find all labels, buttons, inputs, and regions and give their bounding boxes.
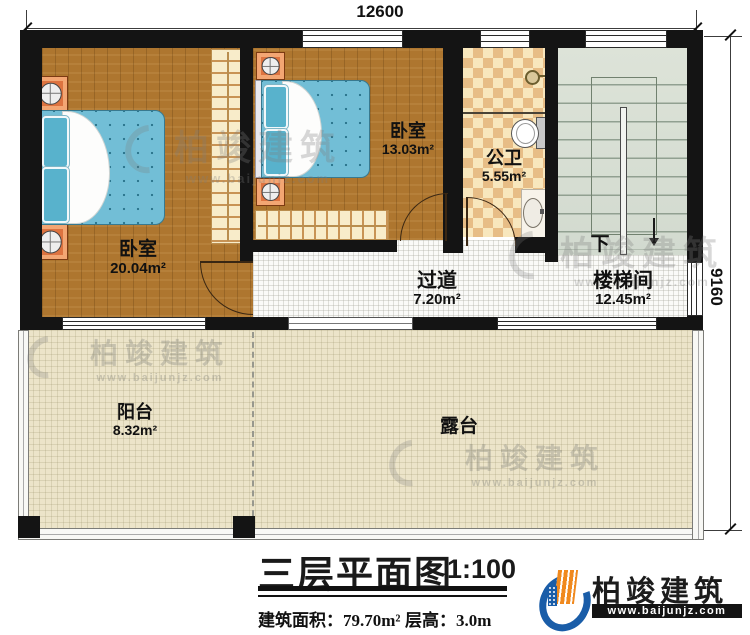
wall-corridor-top xyxy=(253,240,397,252)
wall-top-b xyxy=(403,30,480,48)
title-underline-thick xyxy=(258,586,507,591)
wall-top-c xyxy=(530,30,585,48)
build-area-value: 79.70m² xyxy=(343,611,401,630)
window-bathroom-top xyxy=(480,30,530,48)
bathroom-door-leaf xyxy=(466,197,468,246)
right-dimension-ext-bottom xyxy=(704,530,742,531)
brand-url: www.baijunjz.com xyxy=(592,604,742,618)
brand-logo: 柏竣建筑 www.baijunjz.com xyxy=(540,566,740,630)
title-underline-thin xyxy=(258,595,507,597)
corridor-label: 过道 7.20m² xyxy=(377,270,497,309)
balcony-label: 阳台 8.32m² xyxy=(75,403,195,438)
bedroom2-wardrobe xyxy=(255,210,389,240)
brand-building-icon xyxy=(554,570,578,604)
window-stairwell-top xyxy=(585,30,667,48)
shower-head-icon xyxy=(525,70,540,85)
bedroom2-nightstand-top xyxy=(256,52,285,80)
bathroom-partition-line xyxy=(463,112,545,114)
room-name: 卧室 xyxy=(348,122,468,142)
floor-height-info: 层高：3.0m xyxy=(405,606,491,631)
room-name: 楼梯间 xyxy=(563,270,683,292)
build-area-label: 建筑面积： xyxy=(258,611,343,630)
slider-corridor-terrace xyxy=(288,317,413,330)
floor-plan-page: 12600 9160 xyxy=(0,0,750,635)
wall-left xyxy=(20,30,42,330)
wall-top-a xyxy=(20,30,302,48)
build-area-info: 建筑面积：79.70m² xyxy=(258,606,401,631)
window-bedroom2-top xyxy=(302,30,403,48)
room-area: 5.55m² xyxy=(444,169,564,184)
stairwell-label: 楼梯间 12.45m² xyxy=(563,270,683,309)
wall-bottom-a xyxy=(20,317,62,330)
watermark-url: www.baijunjz.com xyxy=(440,477,630,489)
room-name: 公卫 xyxy=(444,149,564,169)
terrace-label: 露台 xyxy=(399,417,519,438)
watermark-url: www.baijunjz.com xyxy=(128,171,388,186)
lamp-icon xyxy=(39,82,61,104)
bedroom2-door-leaf xyxy=(445,193,447,241)
watermark-url: www.baijunjz.com xyxy=(60,372,260,384)
room-area: 7.20m² xyxy=(377,292,497,309)
room-name: 露台 xyxy=(399,417,519,438)
wall-bottom-b xyxy=(206,317,288,330)
room-area: 20.04m² xyxy=(78,261,198,278)
down-text: 下 xyxy=(585,235,615,256)
room-name: 卧室 xyxy=(78,240,198,261)
watermark-text: 柏竣建筑 xyxy=(60,332,260,372)
bedroom1-pillow-top xyxy=(42,116,69,168)
lamp-icon xyxy=(39,230,61,253)
room-area: 8.32m² xyxy=(75,423,195,438)
terrace-railing-bottom xyxy=(18,528,704,540)
watermark-terrace: 柏竣建筑 www.baijunjz.com xyxy=(440,437,630,489)
watermark-balcony: 柏竣建筑 www.baijunjz.com xyxy=(60,332,260,384)
bedroom1-door-leaf xyxy=(200,261,253,263)
bathroom-label: 公卫 5.55m² xyxy=(444,149,564,184)
top-dimension-label: 12600 xyxy=(280,2,480,22)
lamp-icon xyxy=(261,57,280,75)
railing-post-left xyxy=(18,516,40,538)
plan-scale: 1:100 xyxy=(447,554,516,585)
terrace-railing-right xyxy=(692,330,704,540)
room-name: 阳台 xyxy=(75,403,195,423)
wall-bottom-c xyxy=(413,317,497,330)
window-stairwell-terrace xyxy=(497,317,657,330)
stairs-down-label: 下 xyxy=(585,235,615,256)
wall-bottom-d xyxy=(657,317,703,330)
top-dimension-line xyxy=(26,28,697,29)
room-area: 12.45m² xyxy=(563,292,683,309)
window-bedroom1-balcony xyxy=(62,317,206,330)
bedroom1-label: 卧室 20.04m² xyxy=(78,240,198,277)
room-name: 过道 xyxy=(377,270,497,292)
toilet-seat xyxy=(516,123,535,144)
sink-faucet xyxy=(540,209,544,214)
floor-height-label: 层高： xyxy=(405,611,456,630)
railing-post-middle xyxy=(233,516,255,538)
bedroom1-pillow-bottom xyxy=(42,167,69,223)
shower-stem xyxy=(538,75,545,77)
floor-height-value: 3.0m xyxy=(456,611,491,630)
wardrobe-rod xyxy=(258,225,386,227)
right-dimension-ext-top xyxy=(704,36,742,37)
watermark-text: 柏竣建筑 xyxy=(440,437,630,477)
brand-building-blue-icon xyxy=(548,586,557,606)
